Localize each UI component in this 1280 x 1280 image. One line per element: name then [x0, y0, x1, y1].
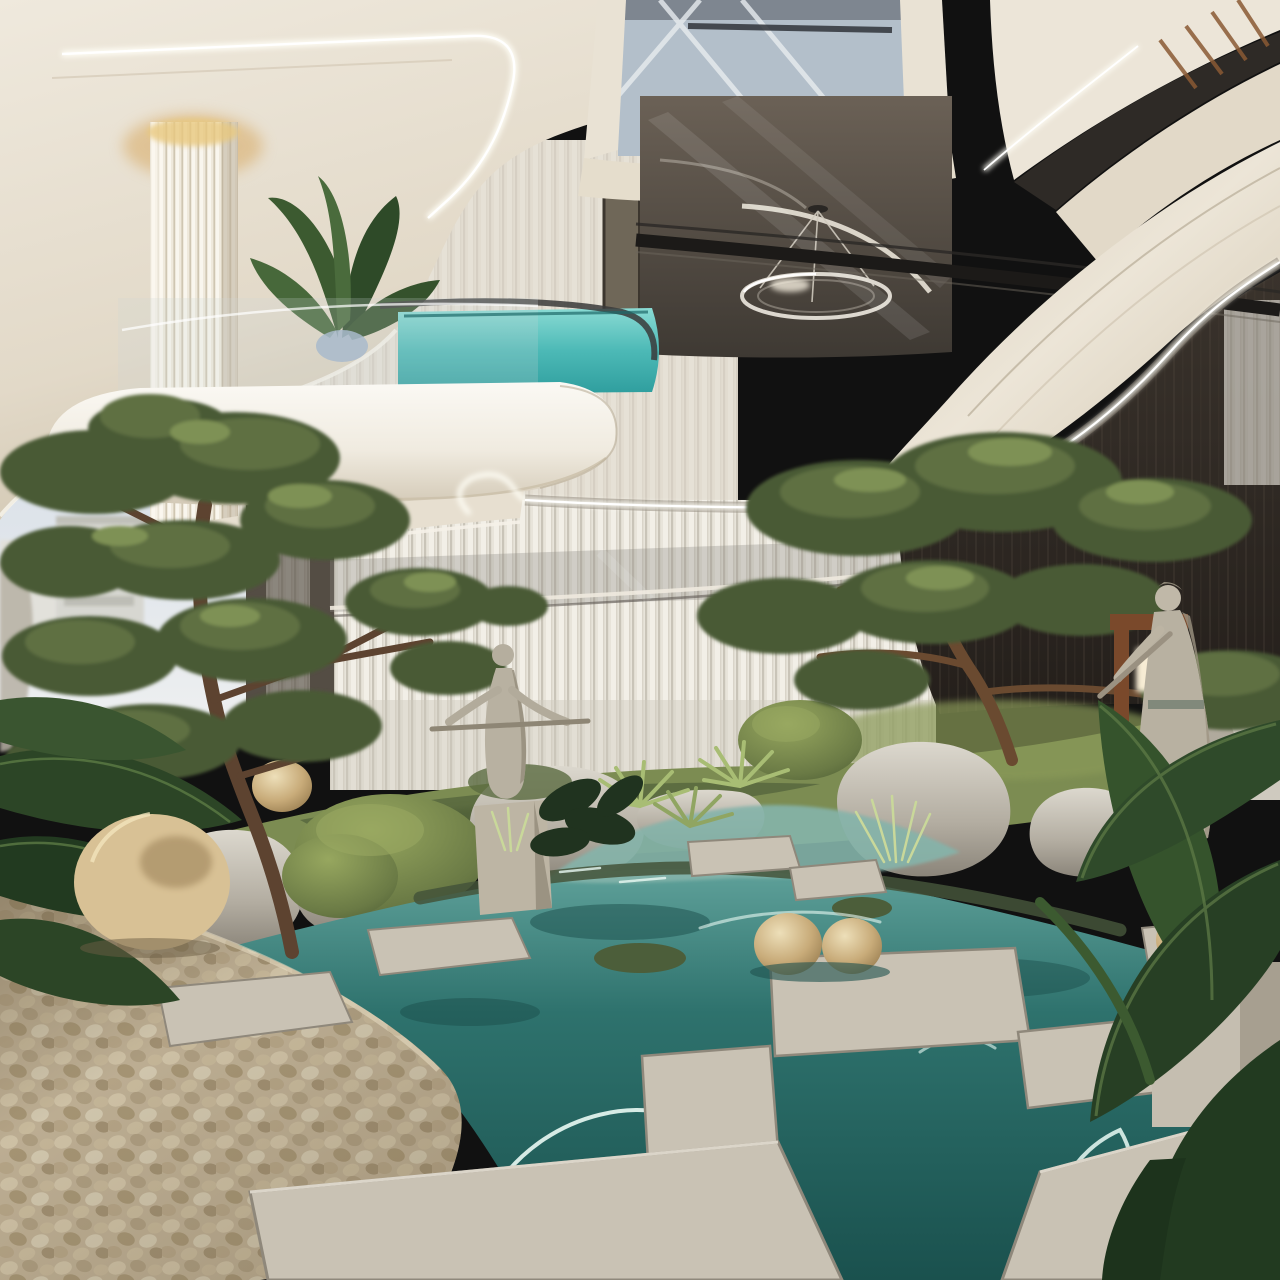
- glass-pool: [118, 298, 659, 394]
- scene-canvas: [0, 0, 1280, 1280]
- courtyard-render: [0, 0, 1280, 1280]
- stepping-stone: [688, 836, 800, 876]
- balcony-glass-railing: [118, 298, 538, 394]
- stepping-stone: [790, 860, 886, 900]
- upper-glass-rail: [688, 26, 892, 30]
